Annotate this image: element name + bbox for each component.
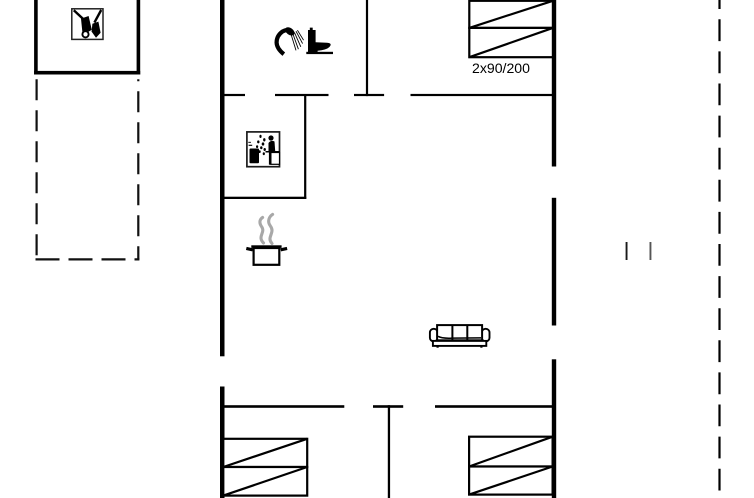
svg-text:2x90/200: 2x90/200: [472, 61, 530, 77]
